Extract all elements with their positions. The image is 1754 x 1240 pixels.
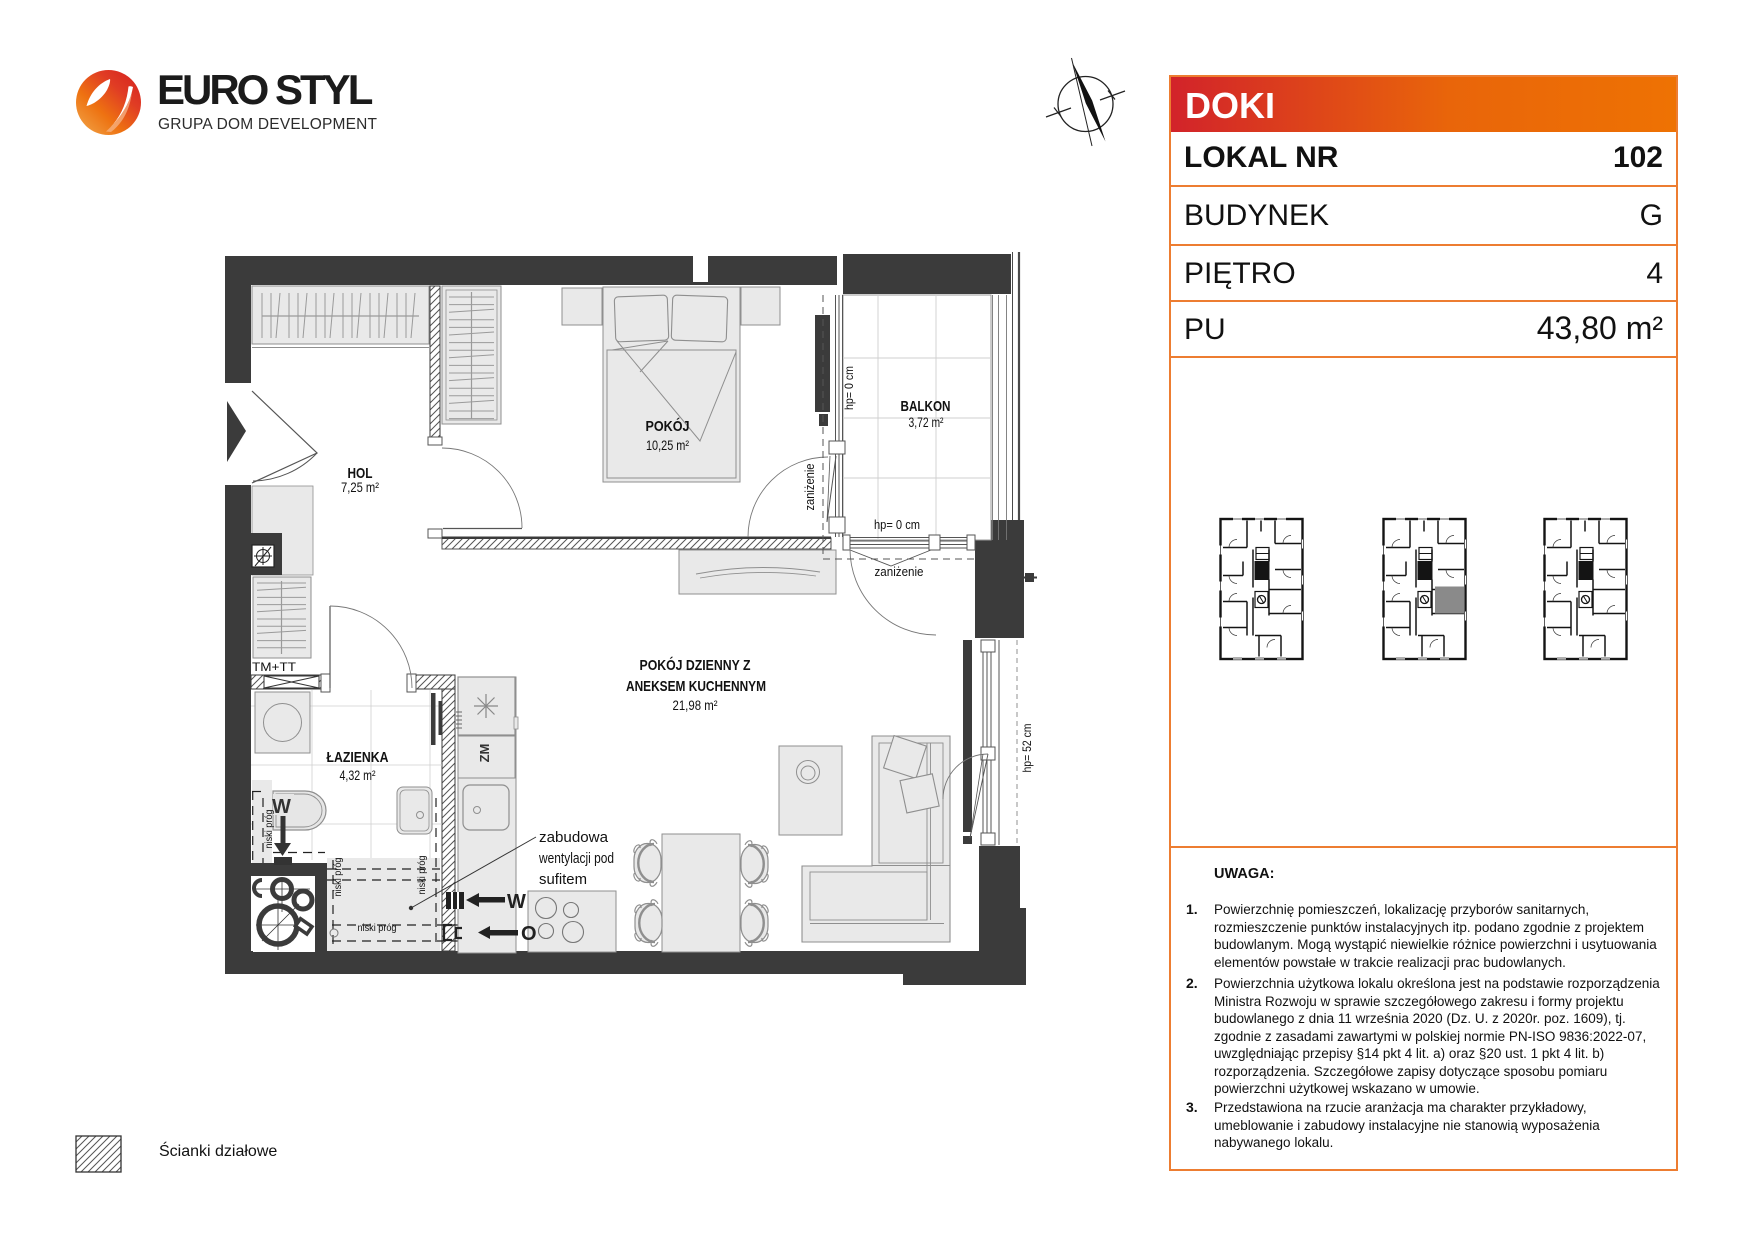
svg-text:10,25 m²: 10,25 m² <box>646 437 689 453</box>
svg-text:zaniżenie: zaniżenie <box>875 565 924 579</box>
svg-text:TM+TT: TM+TT <box>252 660 297 674</box>
svg-text:niski próg: niski próg <box>264 810 275 849</box>
svg-text:3,72 m²: 3,72 m² <box>909 414 944 430</box>
svg-text:niski próg: niski próg <box>417 856 428 895</box>
svg-text:ŁAZIENKA: ŁAZIENKA <box>327 749 389 766</box>
svg-text:21,98 m²: 21,98 m² <box>673 697 718 713</box>
svg-text:POKÓJ DZIENNY Z: POKÓJ DZIENNY Z <box>640 656 751 674</box>
svg-text:4,32 m²: 4,32 m² <box>340 767 376 783</box>
svg-text:BALKON: BALKON <box>901 398 951 415</box>
svg-text:ANEKSEM KUCHENNYM: ANEKSEM KUCHENNYM <box>626 678 766 695</box>
svg-text:zabudowa: zabudowa <box>539 830 609 846</box>
svg-text:niski próg: niski próg <box>333 858 344 897</box>
svg-text:ZM: ZM <box>477 744 492 763</box>
svg-text:niski próg: niski próg <box>358 923 397 934</box>
svg-text:zaniżenie: zaniżenie <box>803 463 817 510</box>
svg-text:hp= 52 cm: hp= 52 cm <box>1020 724 1034 773</box>
svg-text:W: W <box>507 891 526 913</box>
svg-text:hp= 0 cm: hp= 0 cm <box>842 366 856 410</box>
svg-text:hp= 0 cm: hp= 0 cm <box>874 518 920 532</box>
svg-text:wentylacji pod: wentylacji pod <box>538 851 614 867</box>
svg-text:POKÓJ: POKÓJ <box>646 417 690 435</box>
svg-text:7,25 m²: 7,25 m² <box>341 479 379 495</box>
svg-text:O: O <box>521 923 537 945</box>
svg-text:sufitem: sufitem <box>539 872 587 888</box>
